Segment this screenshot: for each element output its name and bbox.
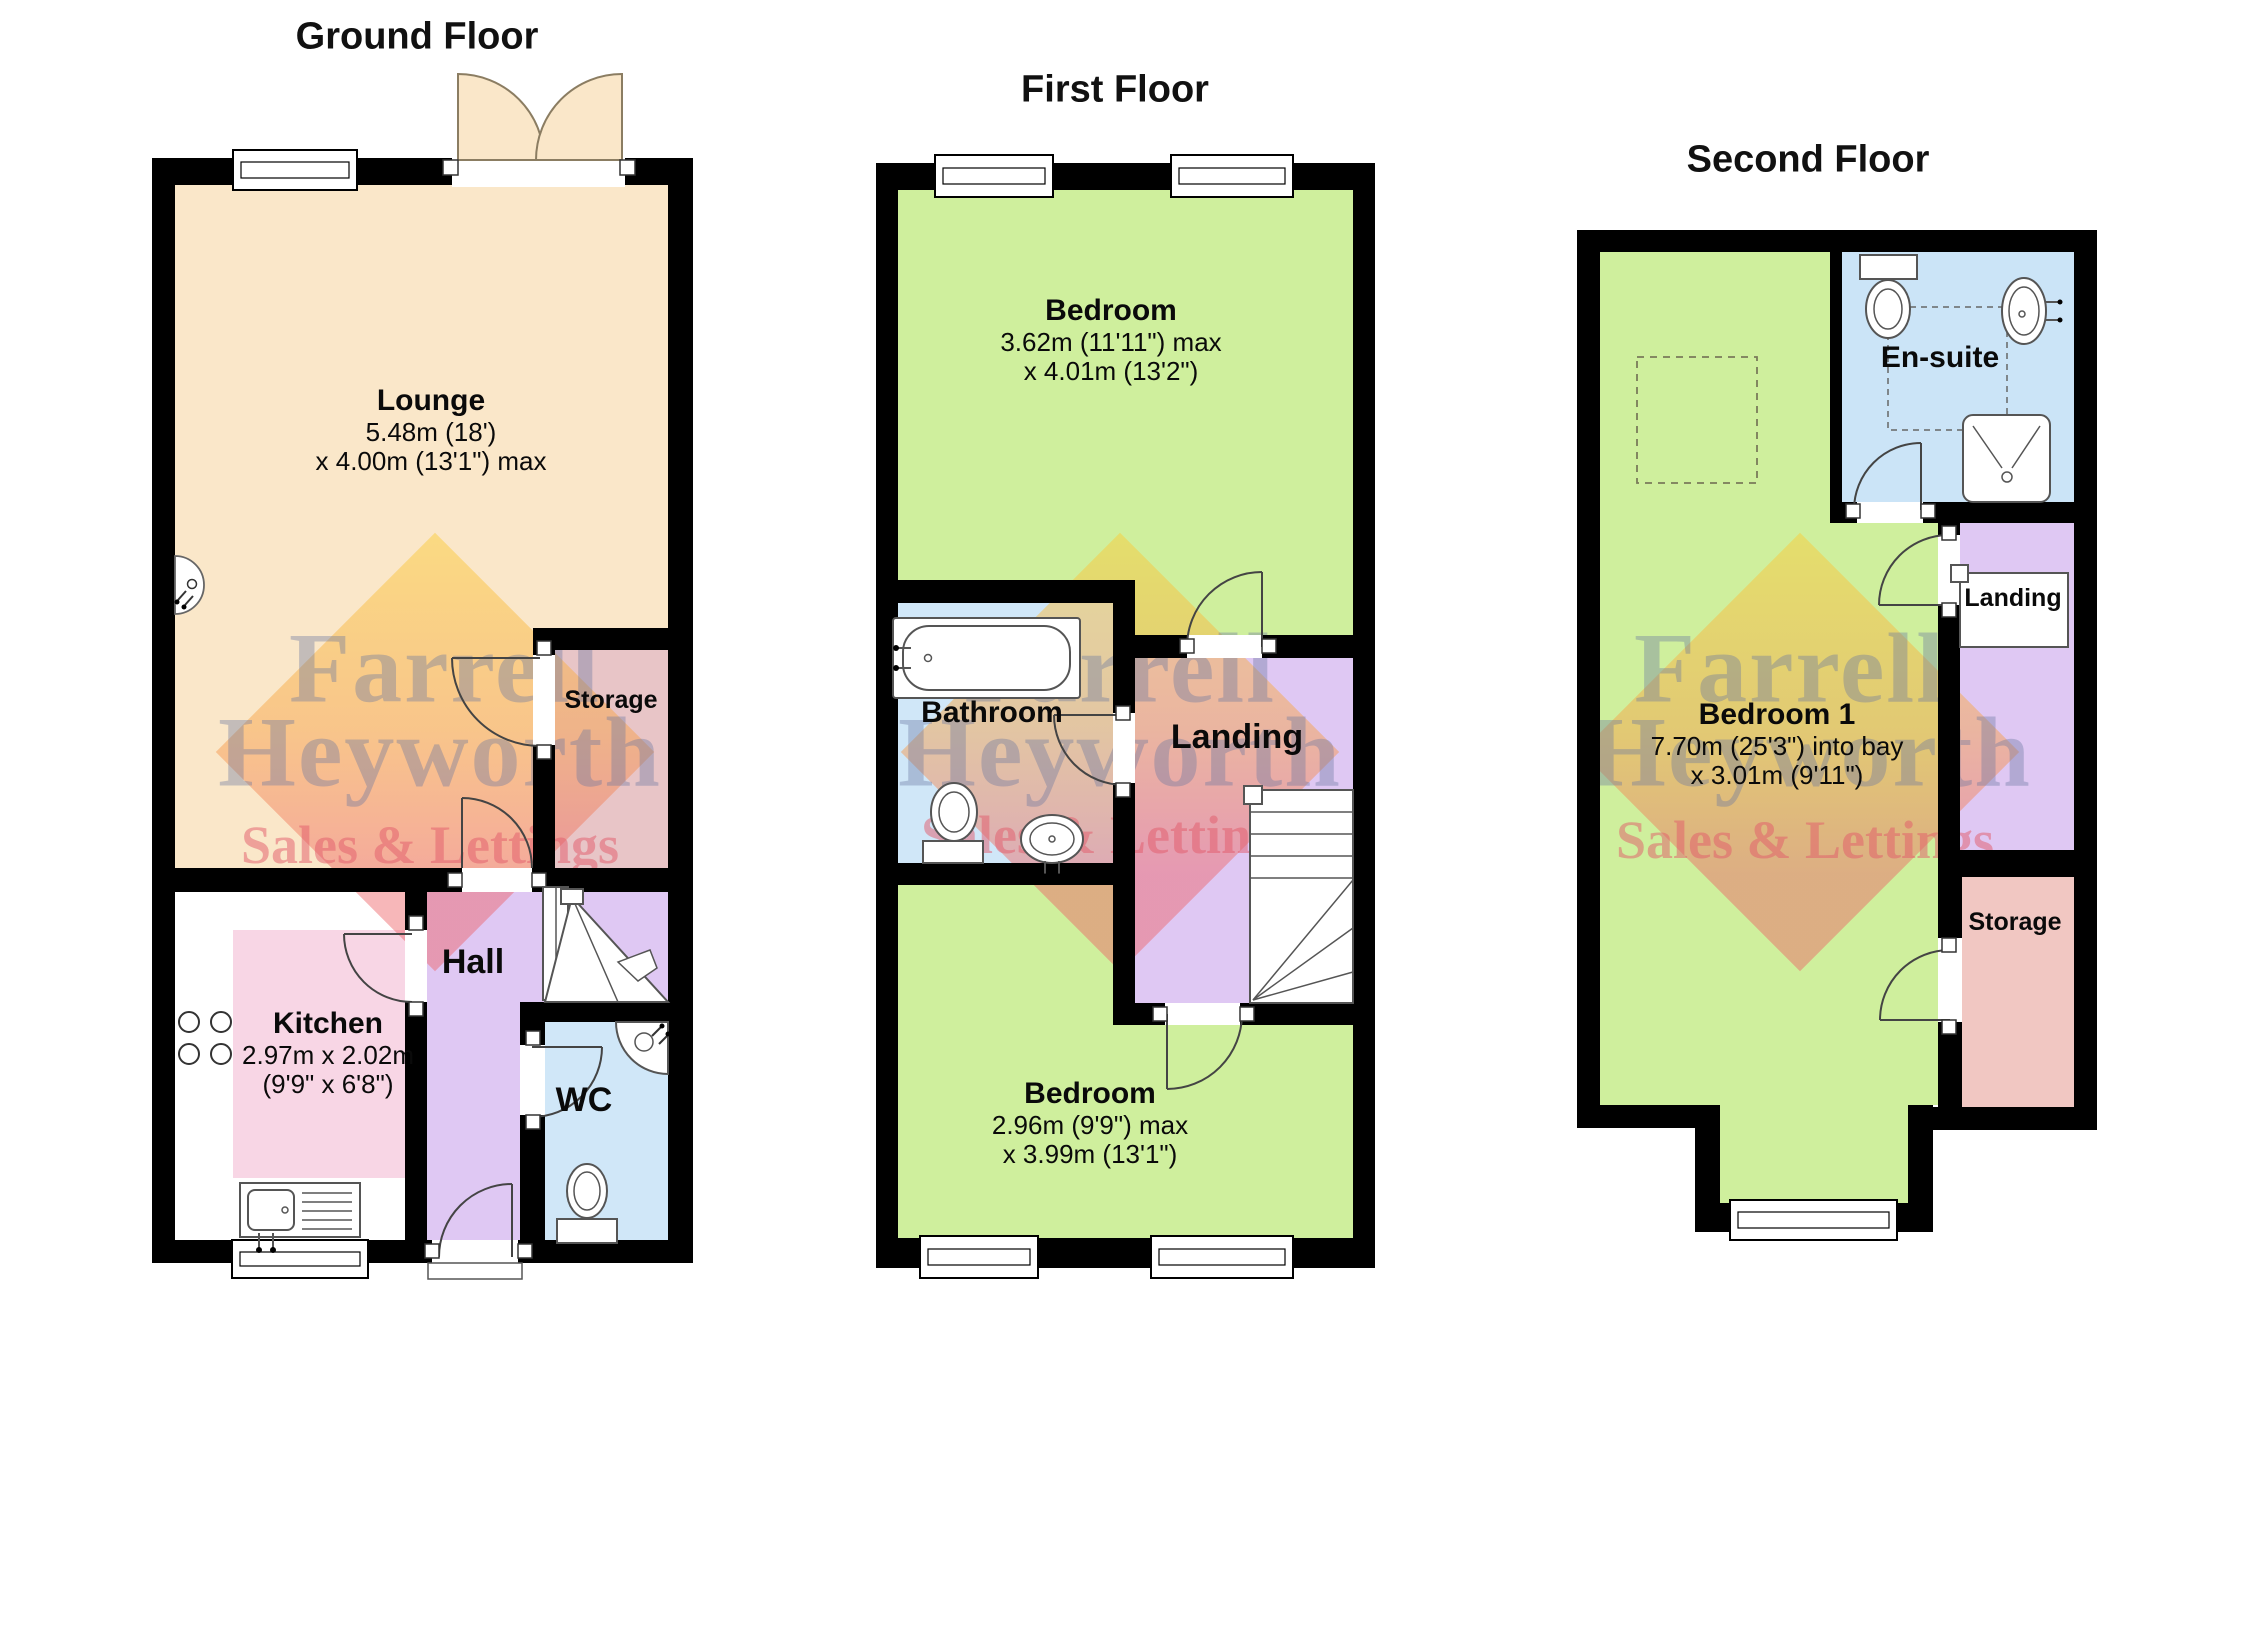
bath-icon [893, 618, 1080, 698]
floorplan-page: Farrell Heyworth Sales & Lettings Farrel… [0, 0, 2256, 1640]
room-name: Storage [1968, 908, 2061, 936]
room-dim: 3.62m (11'11") max [1000, 328, 1221, 357]
watermark-tagline: Sales & Lettings [921, 804, 1299, 866]
room-label-bathroom: Bathroom [921, 696, 1063, 730]
room-name: Bedroom [992, 1077, 1188, 1111]
second-floor-title: Second Floor [1687, 139, 1930, 182]
room-name: Bedroom 1 [1651, 698, 1904, 732]
room-label-landing-first: Landing [1171, 718, 1303, 756]
room-label-landing-second: Landing [1964, 584, 2061, 612]
room-label-storage-ground: Storage [564, 686, 657, 714]
room-label-bedroom-rear: Bedroom 2.96m (9'9") max x 3.99m (13'1") [992, 1077, 1188, 1169]
first-floor-title: First Floor [1021, 69, 1209, 112]
room-dim: (9'9" x 6'8") [242, 1070, 414, 1099]
room-label-hall: Hall [442, 943, 504, 981]
room-name: Storage [564, 686, 657, 714]
stairs-icon [1244, 786, 1353, 1003]
room-name: En-suite [1881, 341, 1999, 375]
room-dim: x 4.01m (13'2") [1000, 357, 1221, 386]
french-doors-icon [443, 74, 635, 187]
room-label-wc: WC [556, 1081, 613, 1119]
room-dim: x 4.00m (13'1") max [316, 447, 547, 476]
room-dim: x 3.01m (9'11") [1651, 761, 1904, 790]
room-label-ensuite: En-suite [1881, 341, 1999, 375]
room-label-bedroom-1: Bedroom 1 7.70m (25'3") into bay x 3.01m… [1651, 698, 1904, 790]
watermark-second: Farrell Heyworth Sales & Lettings [1577, 230, 2097, 1130]
structure-layer [0, 0, 2256, 1640]
watermark-tagline: Sales & Lettings [1616, 809, 1994, 871]
dashed-square [1637, 357, 1757, 483]
sink-drainer-icon [240, 1183, 360, 1253]
door-swing [1054, 572, 1262, 1089]
room-dim: 7.70m (25'3") into bay [1651, 732, 1904, 761]
toilet-icon [1860, 255, 1917, 338]
watermark-tagline: Sales & Lettings [241, 814, 619, 876]
room-name: Bathroom [921, 696, 1063, 730]
room-dim: 5.48m (18') [316, 418, 547, 447]
brand-diamond-icon [216, 533, 654, 971]
room-dim: 2.97m x 2.02m [242, 1041, 414, 1070]
ground-floor-title: Ground Floor [296, 16, 539, 59]
room-name: Kitchen [242, 1007, 414, 1041]
basin-icon [2002, 278, 2063, 344]
room-name: Hall [442, 943, 504, 981]
room-label-storage-second: Storage [1968, 908, 2061, 936]
wall-light-icon [175, 556, 205, 614]
hob-icon [179, 1012, 231, 1064]
door-jambs [1116, 639, 1276, 1021]
room-name: Bedroom [1000, 294, 1221, 328]
watermark-brand-line1: Farrell [289, 611, 601, 726]
toilet-icon [923, 783, 983, 863]
room-label-bedroom-front: Bedroom 3.62m (11'11") max x 4.01m (13'2… [1000, 294, 1221, 386]
window [1730, 1200, 1897, 1240]
window [232, 150, 368, 1278]
corner-basin-icon [616, 1022, 671, 1074]
room-name: WC [556, 1081, 613, 1119]
room-label-lounge: Lounge 5.48m (18') x 4.00m (13'1") max [316, 384, 547, 476]
basin-icon [1021, 815, 1083, 879]
room-dim: 2.96m (9'9") max [992, 1111, 1188, 1140]
room-dim: x 3.99m (13'1") [992, 1140, 1188, 1169]
room-label-kitchen: Kitchen 2.97m x 2.02m (9'9" x 6'8") [242, 1007, 414, 1099]
room-name: Landing [1964, 584, 2061, 612]
shower-tray-icon [1963, 415, 2050, 502]
room-fills-layer [0, 0, 2256, 1640]
room-name: Lounge [316, 384, 547, 418]
room-name: Landing [1171, 718, 1303, 756]
stairs-icon [543, 887, 668, 1002]
toilet-icon [557, 1164, 617, 1243]
